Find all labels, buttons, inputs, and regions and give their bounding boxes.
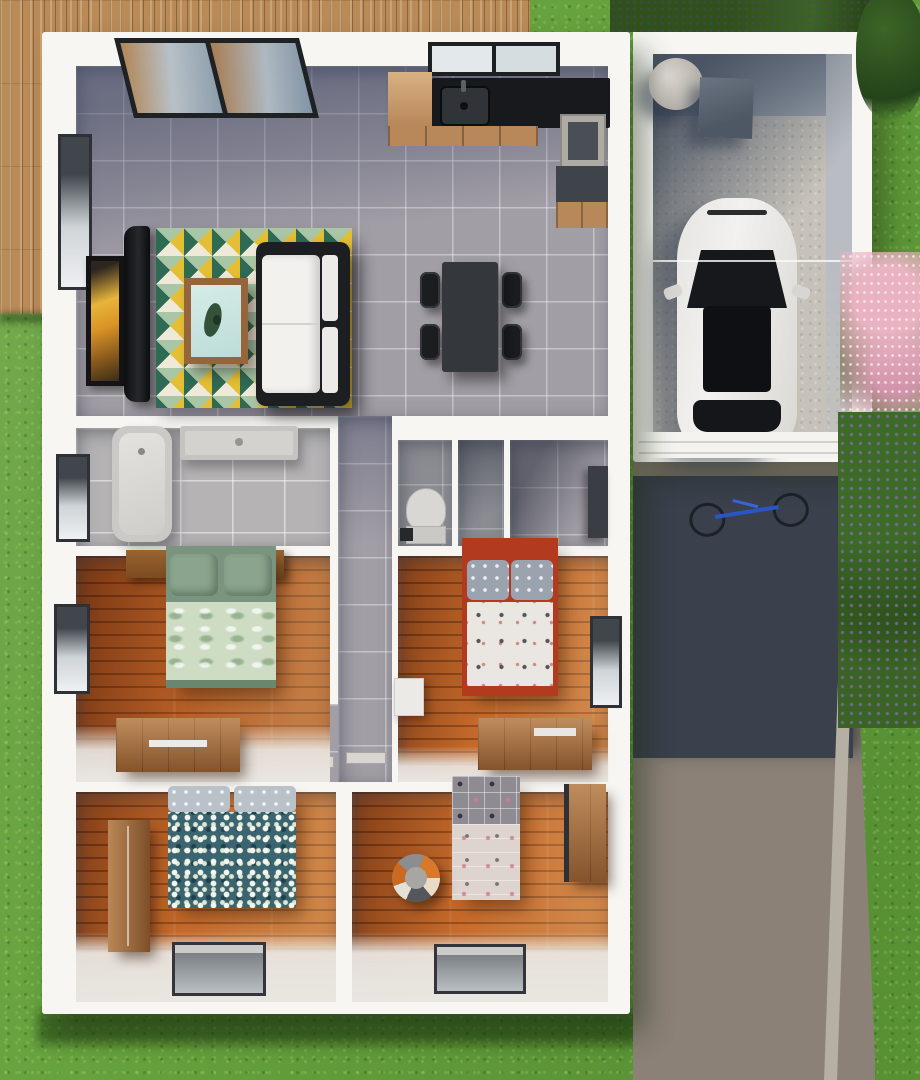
bed-foot	[166, 680, 276, 688]
duvet	[168, 812, 296, 908]
window-sill	[175, 945, 263, 953]
house	[42, 32, 630, 1014]
faucet	[461, 80, 466, 92]
garage	[633, 28, 872, 462]
car-rear-window	[693, 400, 781, 432]
dining-chair	[502, 324, 522, 360]
entry-cabinet	[588, 466, 608, 538]
deck-left	[0, 0, 44, 314]
car	[677, 198, 797, 452]
bicycle	[688, 490, 807, 538]
bicycle-frame	[732, 499, 758, 508]
garage-gate	[639, 432, 866, 458]
wardrobe	[108, 820, 150, 952]
dresser	[116, 718, 240, 772]
beach-ball-cap	[405, 867, 427, 889]
dining-chair	[502, 272, 522, 308]
side-cabinet	[556, 202, 608, 228]
car-hood-trim	[707, 210, 767, 215]
toilet	[406, 488, 446, 530]
pillow	[224, 554, 272, 596]
dresser	[478, 718, 592, 770]
duvet	[467, 602, 553, 686]
desk-edge	[564, 784, 569, 882]
dining-table	[442, 262, 498, 372]
vanity-drain	[235, 438, 243, 446]
art-canvas	[91, 261, 119, 381]
white-cabinet	[394, 678, 424, 716]
purple-flower-shrub	[838, 412, 920, 728]
pillow	[511, 560, 553, 600]
utility-unit	[698, 77, 754, 139]
window-sill	[437, 947, 523, 955]
bedroom-window	[54, 604, 90, 694]
dresser-tray	[534, 728, 576, 736]
garage-floor	[653, 54, 852, 438]
pillow	[170, 554, 218, 596]
room-bedroom-3	[76, 792, 336, 1002]
waste-bin	[400, 528, 413, 541]
room-entry-hall	[510, 440, 608, 546]
hedge-top	[610, 0, 880, 32]
room-storage	[458, 440, 504, 546]
refrigerator	[560, 114, 606, 168]
art-frame	[86, 256, 124, 386]
wardrobe-seam	[127, 826, 129, 946]
room-bedroom-4	[352, 792, 608, 1002]
corner-shrub	[856, 0, 920, 120]
door-glass-pane	[210, 43, 312, 113]
kitchen-cabinet-front	[388, 126, 538, 146]
pillow	[234, 786, 296, 812]
duvet-fold	[452, 776, 520, 824]
refrigerator-top	[568, 122, 598, 160]
kitchen-window	[428, 42, 560, 76]
floor-plan-render	[0, 0, 920, 1080]
dresser-tray	[149, 740, 207, 747]
side-counter	[556, 166, 608, 204]
pillow	[467, 560, 509, 600]
beach-ball	[392, 854, 440, 902]
coffee-table-glass	[191, 285, 241, 357]
sofa-cushion	[322, 255, 338, 321]
desk	[564, 784, 606, 882]
vanity-basin	[180, 426, 298, 460]
garage-rail	[653, 260, 852, 262]
room-bedroom-2	[398, 556, 608, 782]
deck-shadow	[0, 312, 46, 324]
sofa	[256, 242, 350, 406]
bed-blue	[168, 786, 296, 908]
bicycle-wheel	[688, 502, 726, 538]
sofa-cushion	[322, 327, 338, 393]
dining-chair	[420, 324, 440, 360]
dining-chair	[420, 272, 440, 308]
door-glass-pane	[120, 43, 222, 113]
duvet	[166, 602, 276, 680]
door-threshold	[346, 752, 386, 764]
kitchen-sink	[440, 86, 490, 126]
room-wc	[398, 440, 452, 546]
bicycle-frame	[715, 505, 779, 519]
bathtub-drain	[138, 448, 145, 455]
bathroom-window	[56, 454, 90, 542]
room-living-area	[76, 66, 608, 416]
floor-shadow	[338, 416, 392, 782]
floor-shadow	[458, 440, 504, 546]
kitchen-cabinet-box	[388, 72, 432, 126]
water-tank	[649, 58, 703, 110]
car-windshield	[687, 250, 787, 308]
bed-red	[462, 538, 558, 696]
room-hallway	[338, 416, 392, 782]
plant	[213, 315, 221, 325]
bedroom-window	[172, 942, 266, 996]
nightstand	[126, 550, 168, 578]
window-pane	[432, 46, 492, 72]
bedroom-window	[434, 944, 526, 994]
bedroom-window	[590, 616, 622, 708]
car-roof-glass	[703, 306, 771, 392]
coffee-table	[184, 278, 248, 364]
room-bedroom-master	[76, 556, 330, 782]
pillow	[168, 786, 230, 812]
house-shadow	[38, 1010, 642, 1044]
tv	[124, 226, 150, 402]
room-bathroom	[76, 428, 330, 546]
window-pane	[496, 46, 556, 72]
sink-drain	[460, 102, 468, 110]
bed-master	[166, 546, 276, 688]
sliding-door	[114, 38, 319, 118]
bed-pink	[452, 776, 520, 900]
duvet	[452, 824, 520, 900]
sofa-seam	[262, 323, 320, 325]
bathtub	[112, 426, 172, 542]
